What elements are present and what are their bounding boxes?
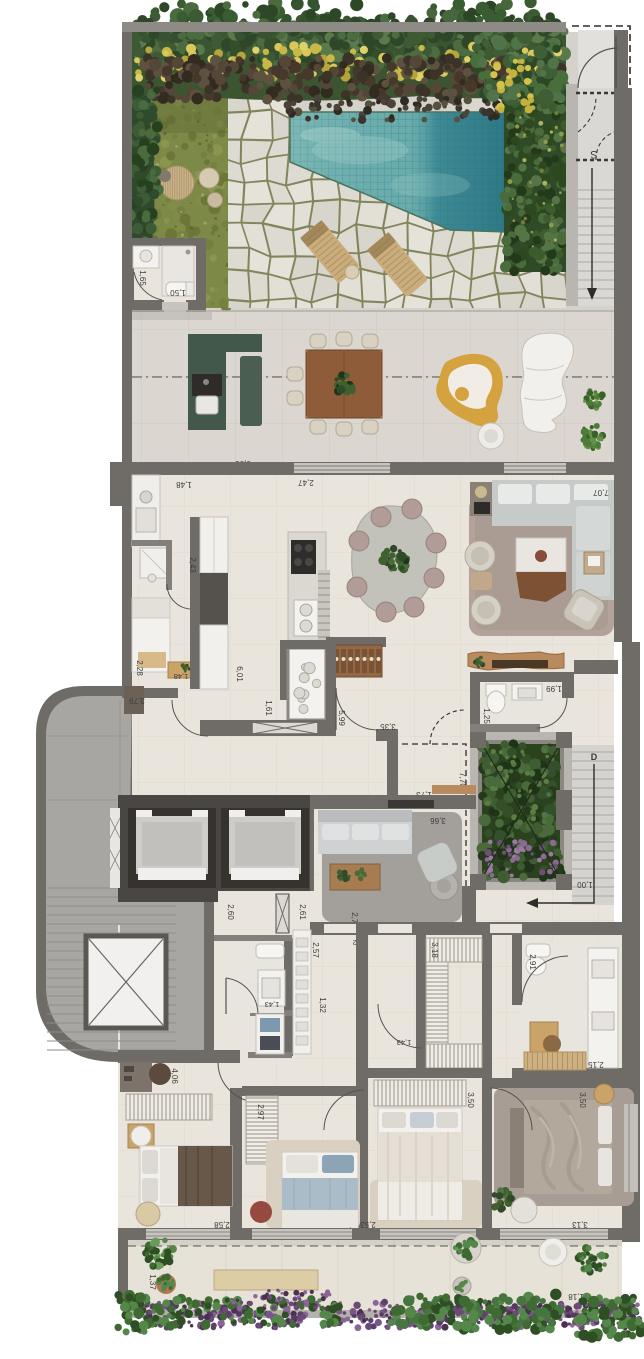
svg-text:3,18: 3,18 [430,942,439,958]
svg-text:1,43: 1,43 [265,1000,280,1009]
svg-text:3,50: 3,50 [466,1092,475,1108]
svg-text:3,79: 3,79 [129,696,145,705]
svg-text:1,32: 1,32 [318,997,327,1013]
svg-text:1,43: 1,43 [397,1038,412,1047]
svg-text:2,47: 2,47 [298,478,314,487]
svg-text:3,13: 3,13 [572,1220,588,1229]
svg-text:1,48: 1,48 [174,672,189,681]
svg-text:2,28: 2,28 [135,660,144,676]
svg-text:7,07: 7,07 [593,488,609,497]
svg-text:6,01: 6,01 [235,666,244,682]
svg-text:2,60: 2,60 [226,904,235,920]
svg-text:3,50: 3,50 [578,1092,587,1108]
svg-text:2,97: 2,97 [256,1104,265,1120]
svg-text:2,57: 2,57 [311,942,320,958]
svg-text:1,99: 1,99 [546,684,562,693]
svg-text:1,25: 1,25 [482,708,491,724]
svg-text:2,53: 2,53 [360,1220,376,1229]
svg-text:D: D [591,752,598,762]
svg-text:1,37: 1,37 [148,1274,157,1290]
svg-text:2,58: 2,58 [214,1220,230,1229]
svg-text:2,61: 2,61 [298,904,307,920]
svg-text:3,66: 3,66 [430,816,446,825]
svg-text:3,35: 3,35 [380,722,396,731]
svg-text:1,00: 1,00 [577,880,593,889]
svg-text:1,50: 1,50 [170,288,186,297]
svg-text:5,99: 5,99 [337,710,346,726]
svg-text:4,06: 4,06 [170,1068,179,1084]
svg-text:2,15: 2,15 [588,1060,604,1069]
svg-text:S: S [590,148,597,160]
svg-text:2,43: 2,43 [188,557,197,573]
svg-text:1,65: 1,65 [138,270,147,286]
svg-text:1,61: 1,61 [264,700,273,716]
svg-text:1,48: 1,48 [176,480,192,489]
svg-text:2,91: 2,91 [528,954,537,970]
